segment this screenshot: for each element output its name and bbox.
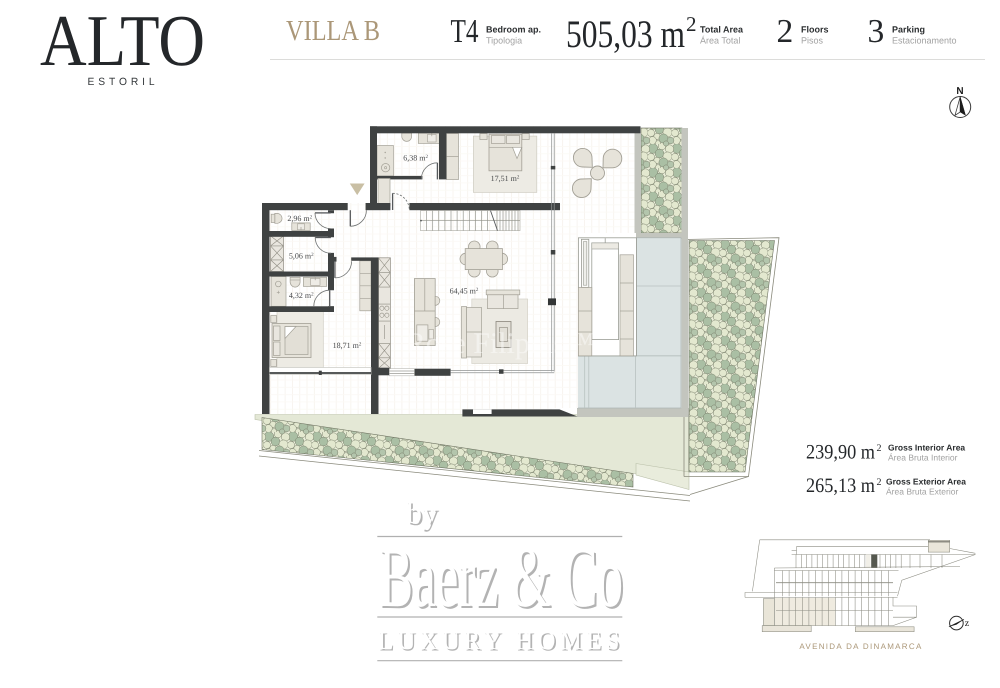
svg-text:5,06 m2: 5,06 m2 <box>289 251 314 260</box>
svg-text:2,96 m2: 2,96 m2 <box>287 214 312 223</box>
svg-text:3: 3 <box>868 13 885 50</box>
svg-text:LUXURY HOMES: LUXURY HOMES <box>378 626 624 655</box>
svg-text:Floors: Floors <box>801 25 829 35</box>
svg-text:239,90 m: 239,90 m <box>806 441 875 463</box>
svg-text:505,03 m: 505,03 m <box>566 13 685 56</box>
svg-text:AVENIDA DA DINAMARCA: AVENIDA DA DINAMARCA <box>799 642 922 651</box>
svg-text:Área Total: Área Total <box>700 36 740 46</box>
svg-text:265,13 m: 265,13 m <box>806 475 875 497</box>
svg-text:Total Area: Total Area <box>700 25 744 35</box>
svg-text:6,38 m2: 6,38 m2 <box>403 154 428 163</box>
svg-text:ESTORIL: ESTORIL <box>88 76 159 88</box>
svg-text:ALTO: ALTO <box>40 0 205 81</box>
svg-text:Gross Exterior Area: Gross Exterior Area <box>886 477 966 487</box>
svg-text:18,71 m2: 18,71 m2 <box>333 341 362 350</box>
svg-text:64,45 m2: 64,45 m2 <box>450 287 479 296</box>
svg-text:T4: T4 <box>451 13 479 50</box>
svg-text:Área Bruta Exterior: Área Bruta Exterior <box>886 487 958 497</box>
svg-text:z: z <box>965 618 970 629</box>
svg-text:Rose Filipins™: Rose Filipins™ <box>406 327 595 360</box>
svg-text:N: N <box>956 86 963 97</box>
svg-text:Área Bruta Interior: Área Bruta Interior <box>888 453 958 463</box>
svg-text:Pisos: Pisos <box>801 36 824 46</box>
svg-text:2: 2 <box>777 13 794 50</box>
svg-text:by: by <box>407 495 439 530</box>
svg-text:2: 2 <box>877 443 882 454</box>
svg-text:Parking: Parking <box>892 25 925 35</box>
svg-text:17,51 m2: 17,51 m2 <box>491 174 520 183</box>
svg-text:4,32 m2: 4,32 m2 <box>289 291 314 300</box>
svg-text:Baerz & Co: Baerz & Co <box>379 529 623 625</box>
svg-text:2: 2 <box>686 12 697 36</box>
svg-text:Tipologia: Tipologia <box>486 36 522 46</box>
svg-text:VILLA B: VILLA B <box>286 15 380 47</box>
svg-text:Gross Interior Area: Gross Interior Area <box>888 443 965 453</box>
svg-text:Bedroom ap.: Bedroom ap. <box>486 25 541 35</box>
svg-text:2: 2 <box>877 477 882 488</box>
svg-text:Estacionamento: Estacionamento <box>892 36 957 46</box>
